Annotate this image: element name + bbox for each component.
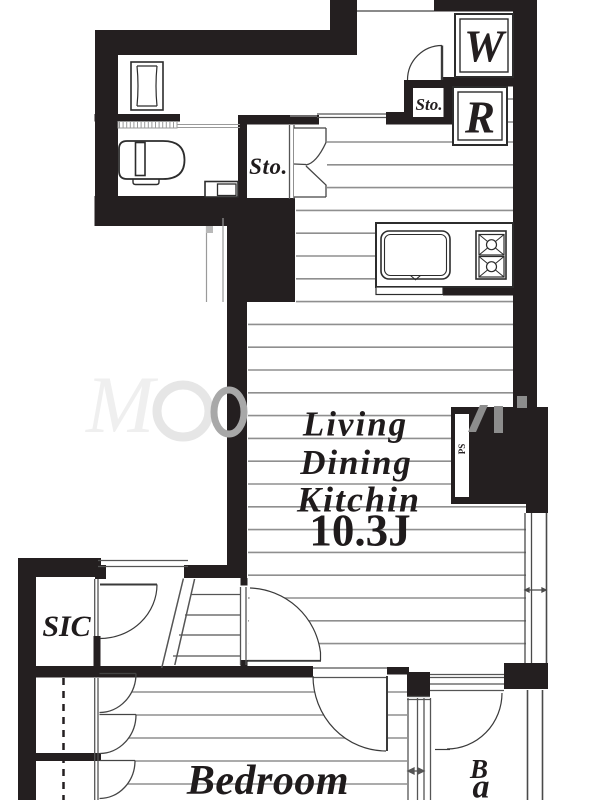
svg-text:Sto.: Sto. — [249, 154, 288, 179]
svg-text:Bedroom: Bedroom — [186, 758, 349, 800]
svg-text:Dining: Dining — [299, 443, 413, 482]
svg-text:R: R — [464, 93, 495, 143]
svg-text:PS: PS — [457, 444, 467, 455]
svg-text:Living: Living — [302, 405, 408, 444]
svg-text:a: a — [473, 769, 490, 800]
svg-text:10.3J: 10.3J — [309, 506, 410, 556]
svg-text:M: M — [85, 359, 159, 450]
svg-text:SIC: SIC — [42, 610, 91, 643]
svg-text:W: W — [464, 22, 507, 72]
svg-text:Sto.: Sto. — [416, 95, 443, 114]
